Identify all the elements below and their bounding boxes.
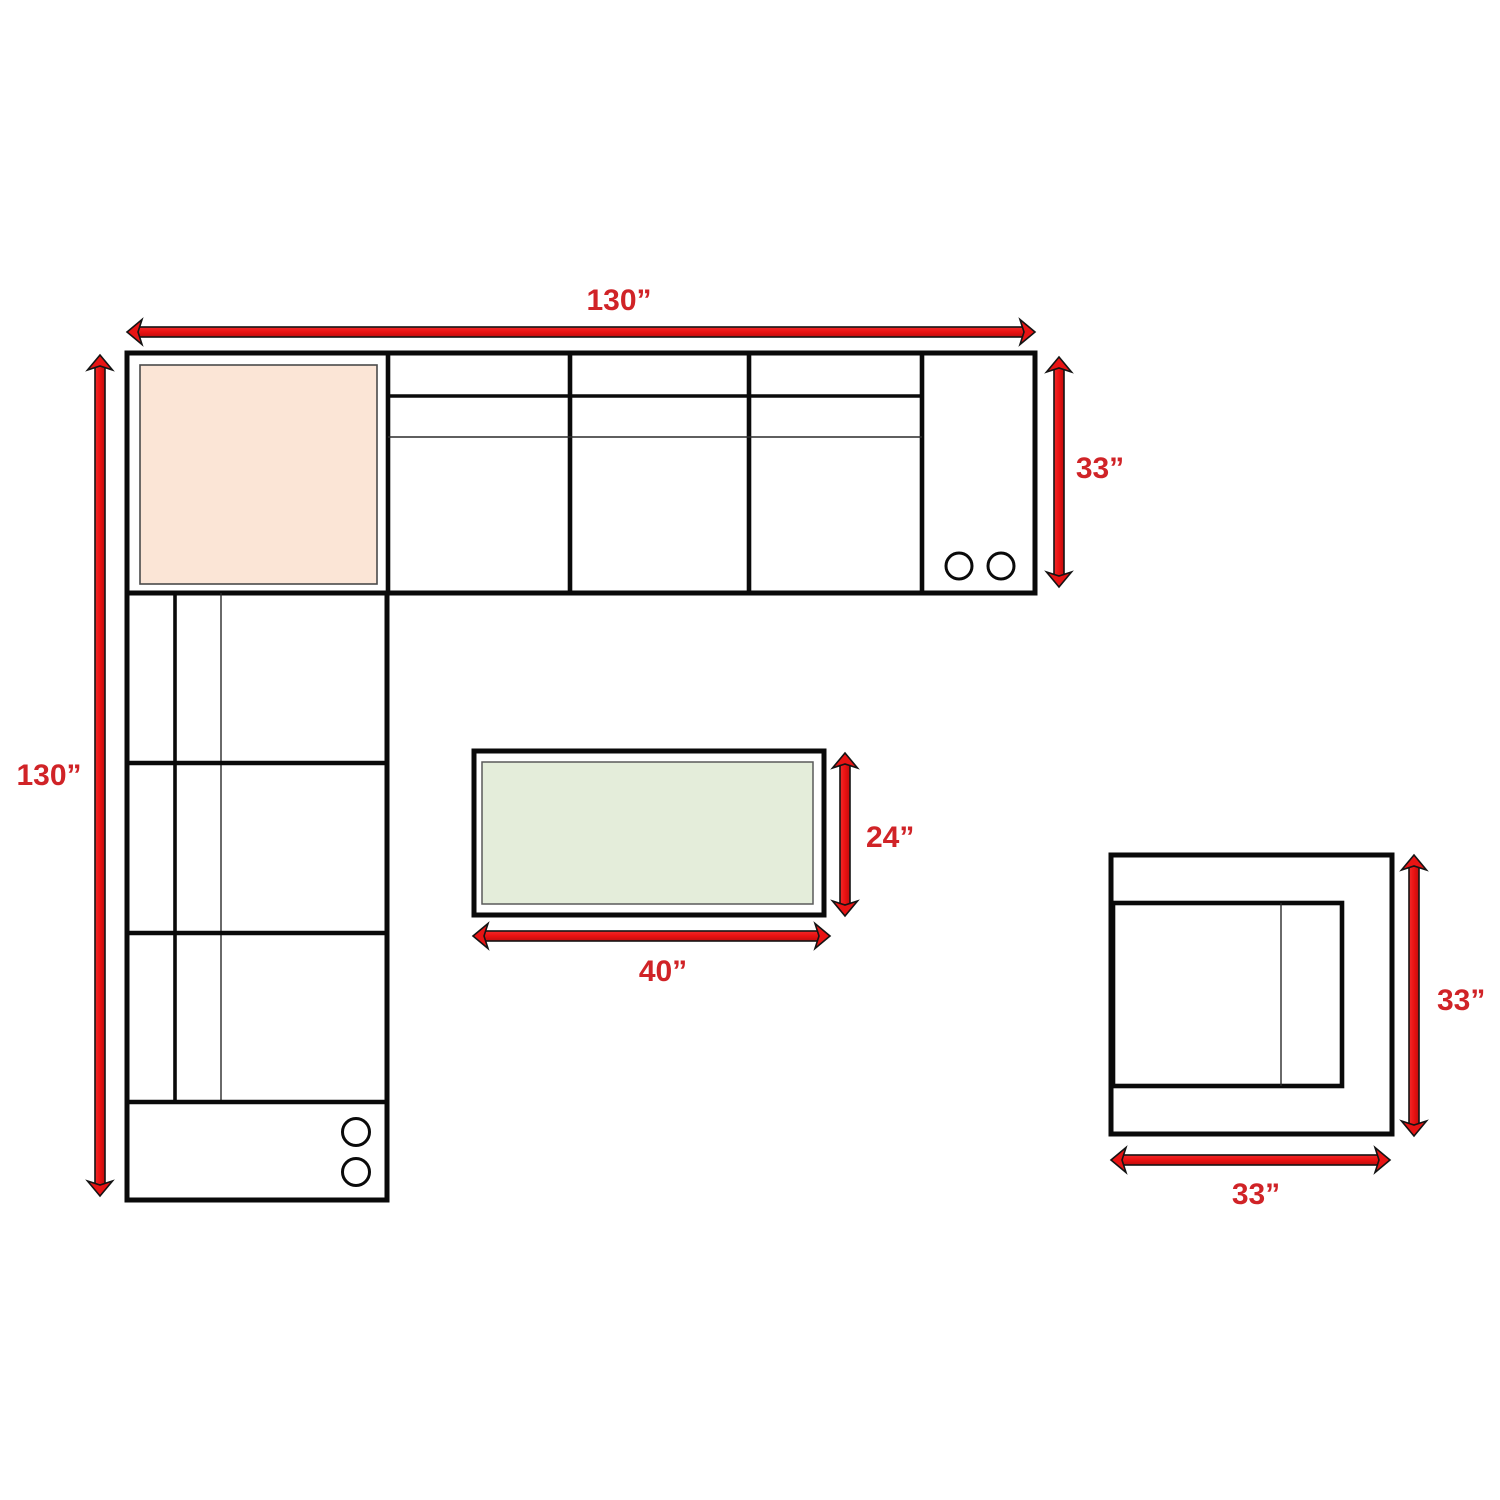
svg-text:33”: 33” (1437, 984, 1485, 1017)
svg-text:24”: 24” (866, 821, 914, 854)
svg-text:33”: 33” (1232, 1178, 1280, 1211)
svg-text:33”: 33” (1076, 452, 1124, 485)
svg-text:130”: 130” (586, 284, 651, 317)
svg-text:40”: 40” (639, 955, 687, 988)
svg-text:130”: 130” (16, 759, 81, 792)
